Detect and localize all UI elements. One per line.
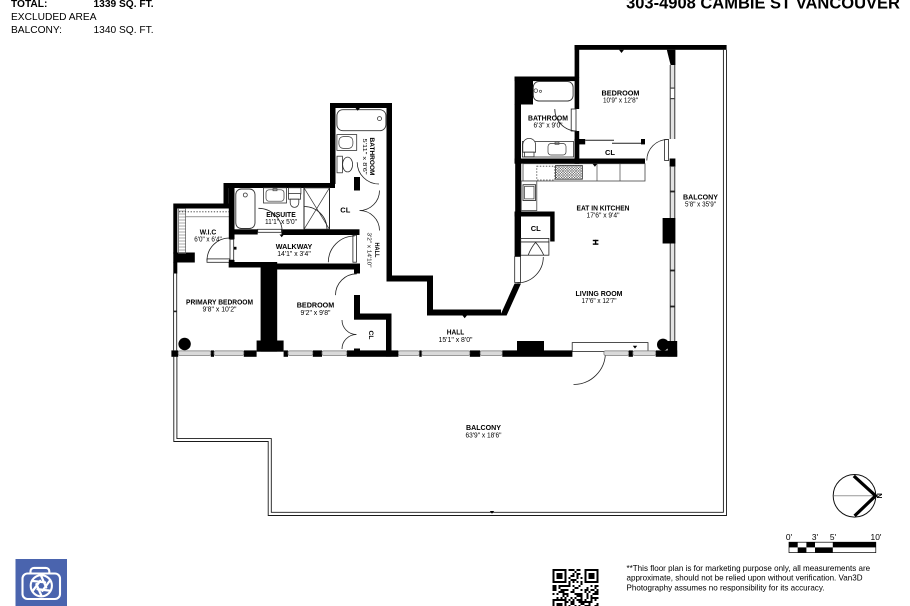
svg-text:0': 0': [786, 532, 793, 542]
svg-text:1339 SQ. FT.: 1339 SQ. FT.: [94, 0, 154, 10]
svg-text:CL: CL: [367, 331, 373, 340]
svg-text:10'9" x 12'8": 10'9" x 12'8": [603, 96, 638, 105]
svg-text:6'0" x 6'4": 6'0" x 6'4": [194, 235, 222, 244]
svg-text:15'1" x 8'0": 15'1" x 8'0": [439, 335, 473, 344]
svg-text:BATHROOM: BATHROOM: [368, 138, 374, 176]
svg-text:CL: CL: [340, 205, 350, 214]
svg-text:EXCLUDED AREA: EXCLUDED AREA: [11, 12, 97, 23]
svg-text:5'11" x 8'6": 5'11" x 8'6": [361, 139, 367, 175]
svg-text:1340 SQ. FT.: 1340 SQ. FT.: [94, 25, 154, 36]
svg-text:10': 10': [871, 532, 882, 542]
svg-text:3'2" x 14'10": 3'2" x 14'10": [366, 233, 372, 268]
svg-text:CL: CL: [605, 148, 615, 157]
svg-text:17'6" x 9'4": 17'6" x 9'4": [587, 211, 620, 220]
svg-text:N: N: [875, 493, 884, 498]
svg-text:63'9" x 18'6": 63'9" x 18'6": [466, 430, 502, 439]
svg-text:**This floor plan is for marke: **This floor plan is for marketing purpo…: [627, 564, 871, 573]
svg-text:17'6" x 12'7": 17'6" x 12'7": [582, 296, 617, 305]
svg-text:3': 3': [812, 532, 819, 542]
svg-text:9'2" x 9'8": 9'2" x 9'8": [301, 308, 331, 317]
svg-text:CL: CL: [531, 224, 541, 233]
svg-text:303-4908 CAMBIE ST VANCOUVER: 303-4908 CAMBIE ST VANCOUVER: [626, 0, 900, 13]
svg-text:BALCONY:: BALCONY:: [11, 25, 62, 36]
svg-text:HALL: HALL: [373, 243, 379, 258]
svg-text:9'8" x 10'2": 9'8" x 10'2": [203, 305, 237, 314]
svg-text:5': 5': [830, 532, 837, 542]
svg-text:Photography assumes no respons: Photography assumes no responsibility fo…: [627, 583, 825, 592]
svg-text:5'8" x 35'9": 5'8" x 35'9": [685, 200, 716, 209]
svg-text:14'1" x 3'4": 14'1" x 3'4": [277, 249, 311, 258]
svg-text:TOTAL:: TOTAL:: [11, 0, 47, 10]
svg-text:approximate, should not be rel: approximate, should not be relied upon w…: [627, 574, 863, 583]
